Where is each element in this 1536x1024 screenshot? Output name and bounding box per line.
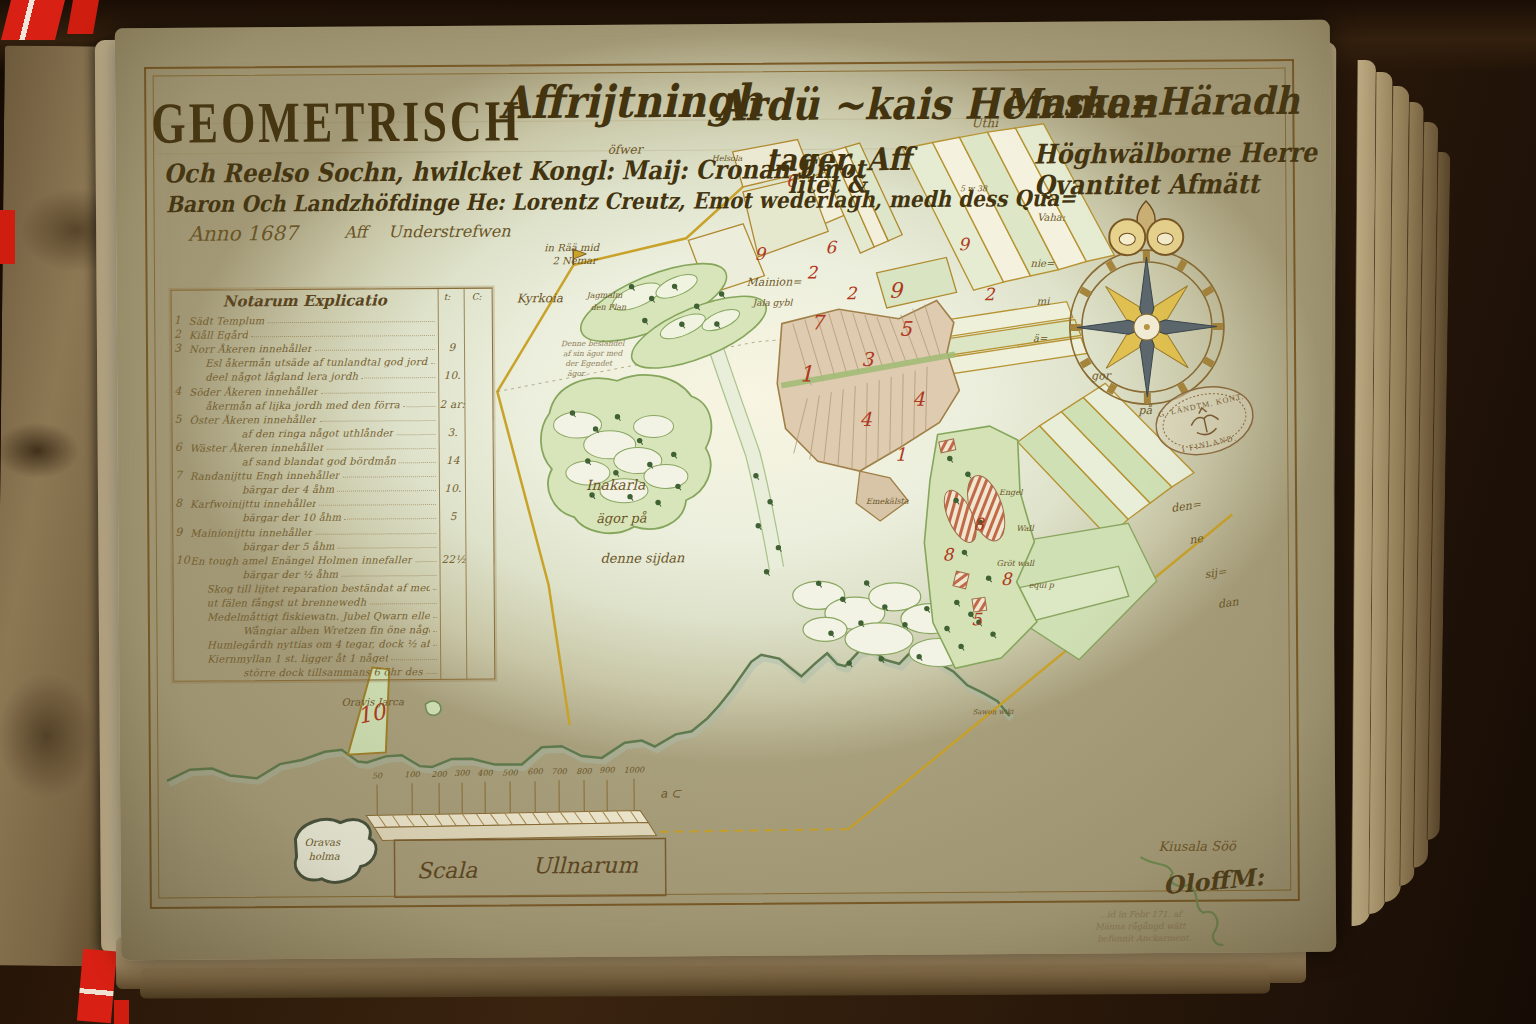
map-note-line1: Denne beslandel — [561, 339, 624, 348]
title-aff: Aff — [344, 222, 367, 241]
scale-tick: 700 — [546, 767, 572, 776]
map-label-pa: på — [1138, 404, 1152, 417]
scale-tick: 600 — [522, 767, 548, 776]
table-rows: 1Sädt Templum 2Kiåll Egård 3Norr Åkeren … — [174, 311, 493, 680]
table-row: af den ringa något uthlånder3. — [175, 423, 491, 439]
map-label-gor: gor — [1091, 369, 1110, 382]
map-label-kiusala: Kiusala Söö — [1158, 838, 1235, 854]
svg-text:3: 3 — [861, 348, 875, 370]
title-line2-right: Höghwälborne Herre — [1034, 136, 1317, 170]
map-title-main: GEOMETRISCH — [151, 87, 522, 157]
scale-end-mark: a ⊂ — [660, 786, 681, 800]
title-district-name: Masko=Häradh — [1003, 78, 1299, 125]
island-label-oravas: Oravas — [304, 837, 340, 848]
table-col2-header: C: — [472, 292, 482, 302]
svg-text:2: 2 — [846, 283, 858, 303]
map-label-oravis-jarca: Oravis Jarca — [341, 696, 403, 707]
table-row: åkermån af lijka jordh med den förra2 ar… — [174, 395, 490, 411]
svg-text:2: 2 — [984, 284, 996, 304]
table-row: bärgar der 4 åhm10. — [175, 480, 491, 496]
scale-tick: 1000 — [621, 766, 647, 775]
map-note-line3: der Egendet — [565, 359, 612, 368]
red-label-fragment — [77, 949, 117, 1024]
meadow-right — [924, 426, 1038, 669]
svg-text:8: 8 — [1001, 569, 1013, 589]
table-row: 10En tough amel Enängel Holmen innefalle… — [175, 550, 491, 566]
svg-text:5: 5 — [899, 317, 913, 341]
map-label-sawon: Sawon wiki — [973, 708, 1014, 716]
map-label-kyrkoia: Kyrkoia — [517, 291, 563, 305]
map-label-equip: equi p — [1029, 581, 1054, 590]
svg-text:6: 6 — [825, 237, 838, 257]
pencil-note-line3: befunnit Anckarment. — [1097, 933, 1191, 945]
svg-text:1: 1 — [895, 444, 907, 465]
table-header: Notarum Explicatio — [172, 291, 438, 311]
scale-tick: 900 — [594, 766, 620, 775]
map-note-line2: af sin ägor med — [563, 349, 622, 358]
red-label-fragment — [114, 1000, 129, 1024]
map-label-distance: in Rää mid — [544, 242, 599, 253]
svg-text:5: 5 — [971, 609, 983, 629]
svg-text:9: 9 — [889, 279, 904, 303]
title-anno-year: Anno 1687 — [188, 221, 298, 246]
notarum-explicatio-table: Notarum Explicatio t: C: 1Sädt Templum 2… — [171, 288, 496, 682]
map-label-538: 5 w 38 — [960, 184, 987, 193]
scale-tick: 400 — [472, 769, 498, 778]
table-col1-header: t: — [444, 292, 451, 302]
map-label-a: ä= — [1033, 333, 1047, 344]
scale-tick: 50 — [364, 771, 390, 780]
pencil-note-line1: ...id in Febr 171. af — [1099, 909, 1181, 921]
map-label-mi: mi — [1037, 296, 1050, 307]
title-word-uthi: Uthi — [971, 116, 998, 130]
map-label-vaha: Vaha: — [1037, 212, 1065, 223]
svg-text:4: 4 — [912, 388, 925, 410]
scale-bar — [366, 778, 666, 897]
map-label-jala: Jala gybl — [753, 298, 793, 308]
map-label-distance2: 2 Nemar — [552, 255, 597, 266]
svg-text:2: 2 — [806, 262, 818, 282]
table-row: 3Norr Åkeren innehåller9 — [174, 339, 490, 355]
map-label-denne-sijdan: denne sijdan — [600, 550, 684, 566]
table-row: bärgar der 10 åhm5 — [175, 508, 491, 524]
svg-text:8: 8 — [973, 514, 985, 534]
scale-tick: 100 — [399, 770, 425, 779]
map-label-agor-pa: ägor på — [596, 511, 646, 526]
map-sheet: 69 62 92 75 31 44 18 88 5 10 29 — [115, 20, 1336, 960]
table-row: af sand blandat god bördmån14 — [175, 452, 491, 468]
title-line3-insert: litet & — [788, 169, 867, 199]
compass-ornament — [1109, 201, 1184, 256]
island-label-holma: holma — [309, 851, 340, 862]
map-label-engel: Engel — [999, 488, 1022, 497]
map-label-inakarla: Inakarla — [586, 477, 645, 493]
map-label-mainion: Mainion= — [747, 275, 802, 288]
svg-text:8: 8 — [942, 544, 954, 564]
map-label-wall: Wall — [1016, 524, 1033, 533]
strip-fields-middle-right — [929, 301, 1087, 374]
scale-caption-scala: Scala — [417, 858, 478, 883]
map-label-emekalsta: Emekälsta — [866, 497, 908, 506]
map-label-nie: nie= — [1030, 258, 1054, 269]
map-label-ne: ne — [1188, 532, 1203, 547]
title-line3-right: Qvantitet Afmätt — [1034, 167, 1260, 201]
red-label-fragment — [0, 210, 15, 264]
table-row: deel något lågland lera jordh10. — [174, 367, 490, 383]
title-understrefwen: Understrefwen — [388, 221, 510, 241]
title-line2: Och Reelso Sochn, hwilcket Kongl: Maij: … — [164, 153, 866, 188]
photograph-of-atlas-map: 69 62 92 75 31 44 18 88 5 10 29 — [0, 0, 1536, 1024]
pencil-note-line2: Männa rågångd wätt — [1095, 921, 1185, 933]
map-label-denplan: den Plan — [591, 303, 626, 312]
bottom-page-edges — [140, 964, 1270, 999]
svg-text:1: 1 — [799, 361, 813, 386]
map-label-jagmalm: Jagmalm — [587, 291, 623, 300]
scale-caption-ullnarum: Ullnarum — [533, 853, 639, 879]
scale-tick: 500 — [497, 768, 523, 777]
map-label-helsola: Helsola — [712, 154, 743, 163]
table-row: större dock tillsammans 6 öhr des — [176, 663, 492, 679]
svg-text:4: 4 — [859, 408, 872, 430]
map-label-grotwall: Gröt wall — [996, 559, 1034, 568]
map-note-line4: ägor. — [567, 369, 586, 378]
red-label-fragment — [1, 0, 65, 40]
